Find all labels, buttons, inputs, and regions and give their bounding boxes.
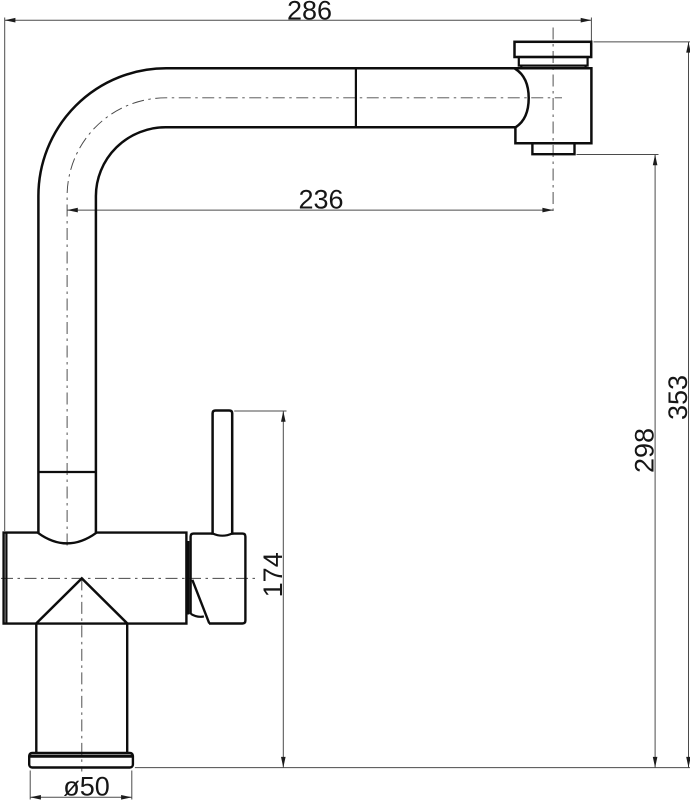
svg-text:298: 298 [630,428,660,473]
svg-text:353: 353 [663,375,690,420]
svg-text:236: 236 [298,184,343,214]
svg-text:ø50: ø50 [63,772,110,800]
svg-text:286: 286 [287,0,332,25]
svg-text:174: 174 [258,552,288,597]
